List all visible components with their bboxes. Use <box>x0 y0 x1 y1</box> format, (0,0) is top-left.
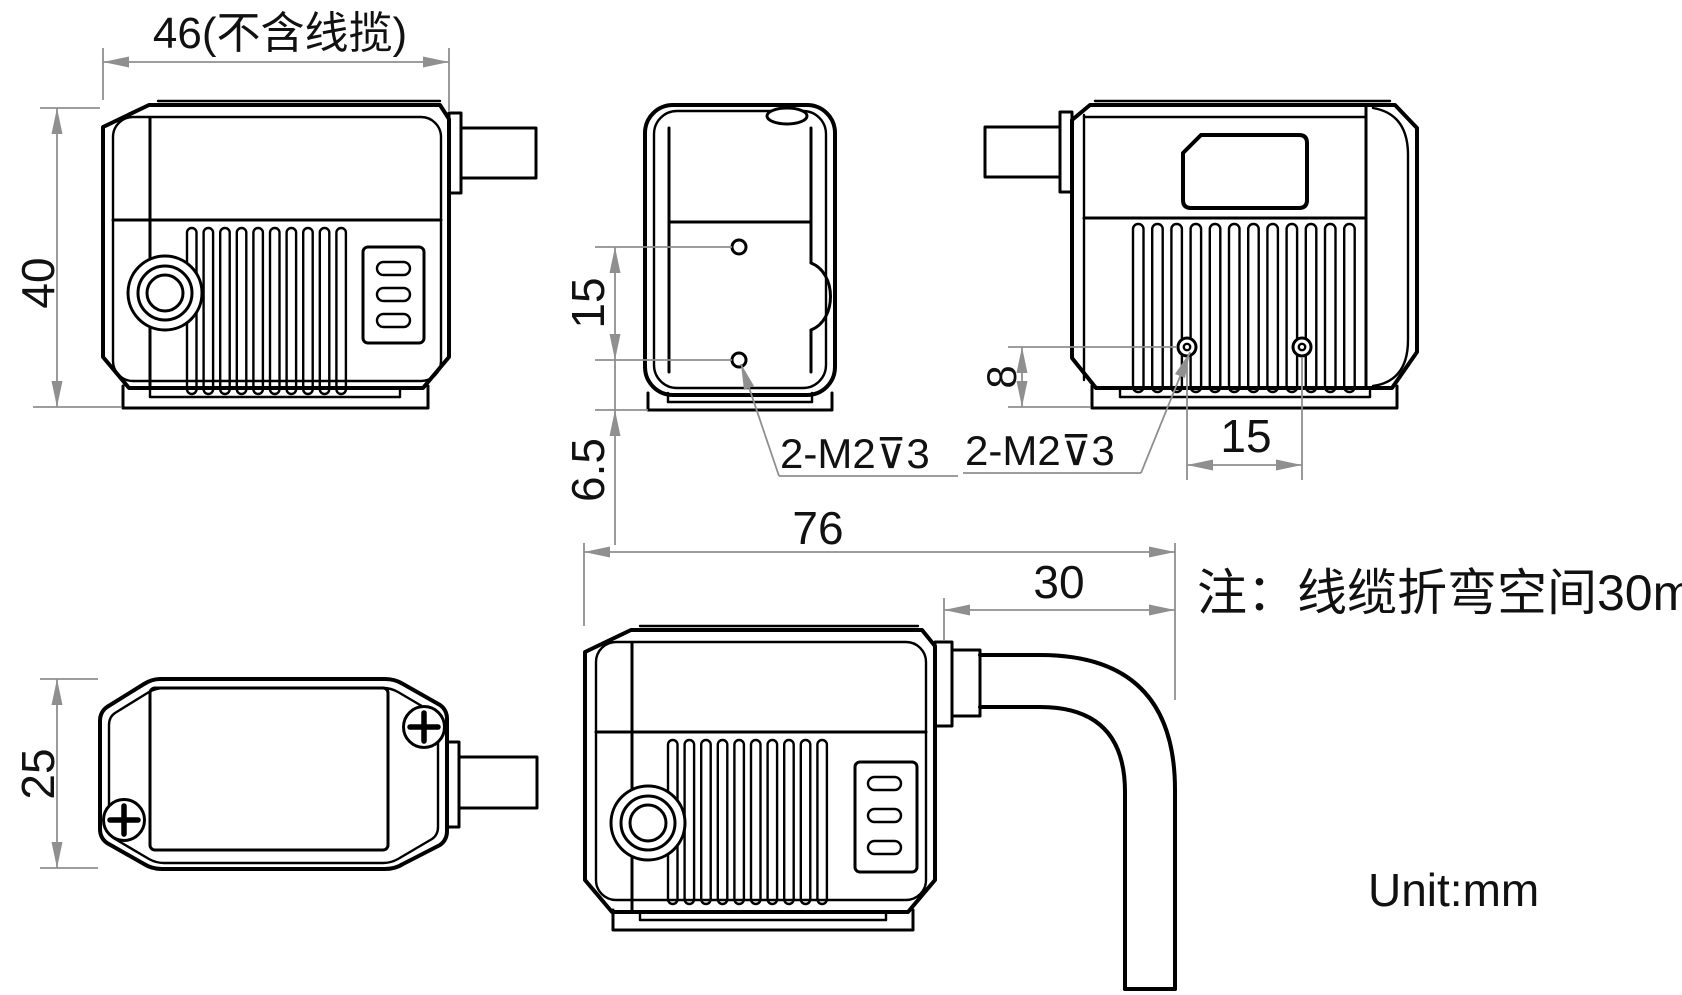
dim-side-hole-spacing-label: 15 <box>562 277 614 328</box>
front-heatsink-fins <box>187 228 346 394</box>
lens-front <box>128 256 202 330</box>
bent-cable <box>980 655 1175 989</box>
top-screw-left <box>104 800 145 841</box>
dim-top-depth-label: 25 <box>12 748 64 799</box>
dim-rear-hole-spacing-label: 15 <box>1220 410 1271 462</box>
side-thread-callout-label: 2-M2⊽3 <box>780 430 930 477</box>
dimension-overall-width: 76 <box>584 502 1175 700</box>
dim-side-hole-offset-label: 6.5 <box>562 438 614 502</box>
unit-label: Unit:mm <box>1368 864 1539 916</box>
front-cable-stub <box>449 113 536 193</box>
dimension-front-width: 46(不含线揽) <box>103 9 449 112</box>
dim-cable-bend-label: 30 <box>1033 556 1084 608</box>
rear-view <box>985 101 1417 408</box>
dimension-side-hole-bottom-offset: 6.5 <box>562 360 648 545</box>
dimension-drawing-page: 46(不含线揽) 40 15 6.5 2-M2⊽3 2-M2⊽3 <box>0 0 1682 995</box>
side-mounting-hole-top <box>732 240 746 254</box>
top-view <box>100 679 537 869</box>
rear-thread-callout-label: 2-M2⊽3 <box>965 427 1115 474</box>
device-dimension-drawing: 46(不含线揽) 40 15 6.5 2-M2⊽3 2-M2⊽3 <box>0 0 1682 995</box>
side-cable-view <box>585 626 1175 989</box>
cable-heatsink-fins <box>668 740 827 904</box>
dimension-top-depth: 25 <box>12 679 98 868</box>
cable-bend-note: 注：线缆折弯空间30mm <box>1197 565 1682 621</box>
front-indicator-panel <box>363 247 424 343</box>
rear-mounting-hole-right <box>1293 338 1311 356</box>
dim-rear-hole-offset-label: 8 <box>978 365 1025 388</box>
top-cable-stub <box>447 742 537 827</box>
cable-connector <box>935 642 980 726</box>
dim-front-width-label: 46(不含线揽) <box>153 9 407 58</box>
dimension-cable-bend-space: 30 <box>944 556 1175 640</box>
lens-side-cable-view <box>611 786 685 860</box>
rear-mounting-hole-left <box>1178 338 1196 356</box>
rear-cable-stub <box>985 112 1072 192</box>
cable-view-indicator-panel <box>855 762 917 872</box>
dim-front-height-label: 40 <box>12 257 64 308</box>
top-screw-right <box>404 707 445 748</box>
side-mounting-hole-bottom <box>732 353 746 367</box>
dimension-rear-hole-spacing: 15 <box>1187 357 1302 480</box>
callout-side-thread: 2-M2⊽3 <box>741 364 958 477</box>
rear-display-window <box>1183 135 1307 208</box>
top-face-plate <box>150 688 388 850</box>
dim-overall-width-label: 76 <box>792 502 843 554</box>
side-lens-bulge <box>811 263 831 330</box>
side-view <box>645 105 835 410</box>
rear-heatsink-fins <box>1133 224 1355 392</box>
side-top-hole <box>767 108 807 124</box>
front-view <box>103 101 536 408</box>
